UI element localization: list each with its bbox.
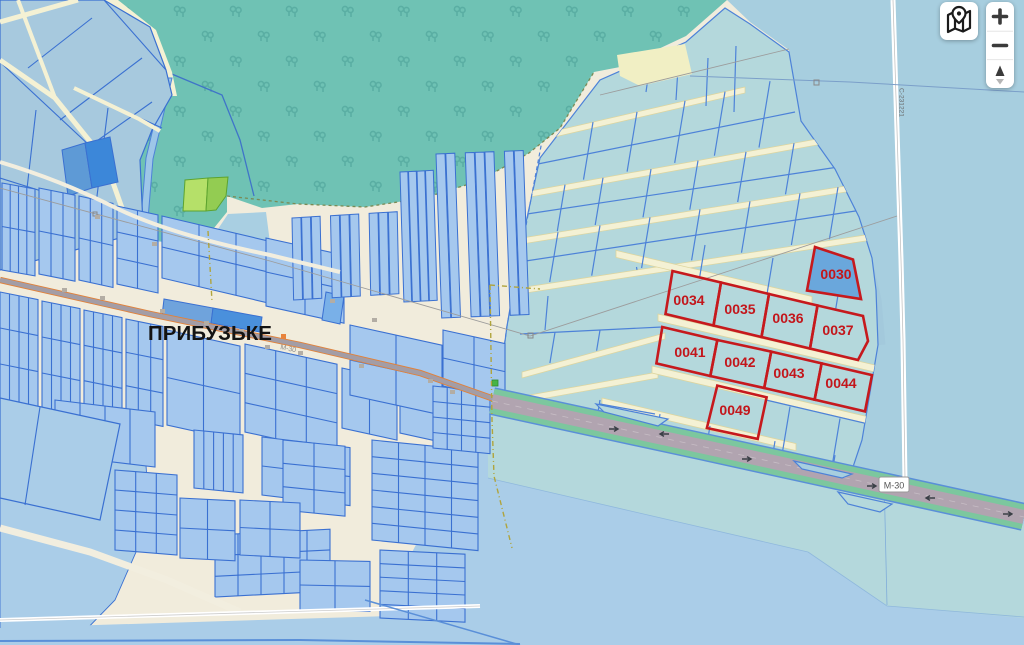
svg-text:С-231221: С-231221: [898, 88, 905, 117]
svg-text:0041: 0041: [674, 344, 705, 360]
svg-text:0049: 0049: [719, 402, 750, 418]
svg-text:0035: 0035: [724, 301, 755, 317]
svg-text:0037: 0037: [822, 322, 853, 338]
svg-text:0034: 0034: [673, 292, 704, 308]
svg-text:0030: 0030: [820, 266, 851, 282]
svg-text:ПРИБУЗЬКЕ: ПРИБУЗЬКЕ: [148, 322, 272, 345]
svg-text:0042: 0042: [724, 354, 755, 370]
svg-text:М-30: М-30: [884, 481, 905, 491]
svg-text:0044: 0044: [825, 375, 856, 391]
svg-text:0036: 0036: [772, 310, 803, 326]
svg-text:0043: 0043: [773, 365, 804, 381]
